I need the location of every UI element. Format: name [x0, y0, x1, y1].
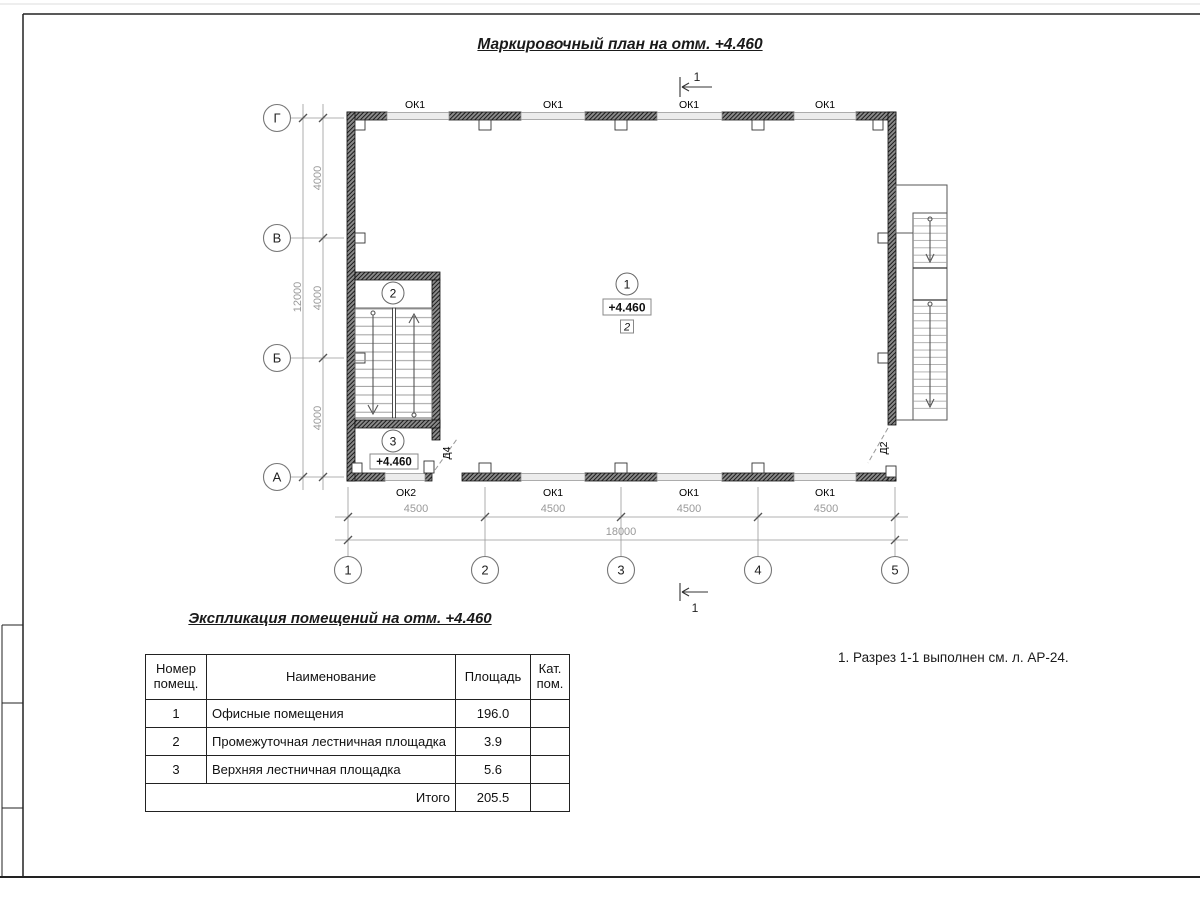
dim-4500-3: 4500 [677, 503, 701, 515]
room-3-elevation: +4.460 [376, 457, 412, 469]
dim-4000-3: 4000 [312, 406, 324, 430]
room-3-number: 3 [390, 435, 397, 449]
header-category: Кат. пом. [531, 655, 570, 700]
room-name-cell: Офисные помещения [207, 700, 456, 728]
room-area-cell: 5.6 [456, 756, 531, 784]
window-label-bottom-3: ОК1 [679, 487, 699, 499]
grid-col-2: 2 [481, 563, 488, 578]
grid-row-a: А [273, 470, 282, 485]
header-name: Наименование [207, 655, 456, 700]
room-category-cell [531, 728, 570, 756]
dim-12000: 12000 [292, 282, 304, 313]
grid-row-v: В [273, 231, 282, 246]
door-label-d2: Д2 [878, 441, 890, 454]
window-label-top-4: ОК1 [815, 99, 835, 111]
room-number-cell: 3 [146, 756, 207, 784]
total-area: 205.5 [456, 784, 531, 812]
window-label-top-2: ОК1 [543, 99, 563, 111]
total-category [531, 784, 570, 812]
dim-4000-2: 4000 [312, 286, 324, 310]
table-row: 2 Промежуточная лестничная площадка 3.9 [146, 728, 570, 756]
walls [347, 112, 896, 481]
total-label: Итого [146, 784, 456, 812]
header-room-number: Номер помещ. [146, 655, 207, 700]
table-total-row: Итого 205.5 [146, 784, 570, 812]
section-marks [680, 77, 712, 601]
table-row: 1 Офисные помещения 196.0 [146, 700, 570, 728]
room-2-number: 2 [390, 287, 397, 301]
grid-col-4: 4 [754, 563, 761, 578]
door-leaves [435, 428, 888, 470]
drawing-title: Маркировочный план на отм. +4.460 [450, 36, 790, 54]
grid-col-1: 1 [344, 563, 351, 578]
door-label-d4: Д4 [441, 446, 453, 459]
room-category-cell [531, 700, 570, 728]
dim-18000: 18000 [606, 526, 637, 538]
drawing-sheet: 4500 4500 4500 4500 18000 4000 4000 4000… [0, 0, 1200, 900]
grid-col-5: 5 [891, 563, 898, 578]
section-label-bottom: 1 [692, 601, 699, 615]
window-openings [385, 113, 856, 481]
table-header-row: Номер помещ. Наименование Площадь Кат. п… [146, 655, 570, 700]
explication-title: Экспликация помещений на отм. +4.460 [145, 610, 535, 627]
window-label-bottom-4: ОК1 [815, 487, 835, 499]
table-row: 3 Верхняя лестничная площадка 5.6 [146, 756, 570, 784]
room-1-elevation: +4.460 [608, 301, 645, 315]
window-label-top-1: ОК1 [405, 99, 425, 111]
window-label-bottom-2: ОК1 [543, 487, 563, 499]
window-label-bottom-1: ОК2 [396, 487, 416, 499]
header-area: Площадь [456, 655, 531, 700]
section-label-top: 1 [694, 70, 701, 84]
room-1-number: 1 [624, 278, 631, 292]
dim-4000-1: 4000 [312, 166, 324, 190]
room-number-cell: 2 [146, 728, 207, 756]
room-area-cell: 3.9 [456, 728, 531, 756]
room-number-cell: 1 [146, 700, 207, 728]
dim-4500-2: 4500 [541, 503, 565, 515]
external-stair [896, 185, 947, 420]
explication-table: Номер помещ. Наименование Площадь Кат. п… [145, 654, 570, 812]
section-note: 1. Разрез 1-1 выполнен см. л. АР-24. [838, 650, 1138, 665]
dim-4500-1: 4500 [404, 503, 428, 515]
room-name-cell: Верхняя лестничная площадка [207, 756, 456, 784]
grid-col-3: 3 [617, 563, 624, 578]
window-label-top-3: ОК1 [679, 99, 699, 111]
grid-row-b: Б [273, 351, 282, 366]
door-labels: Д4 Д2 [441, 441, 890, 459]
dim-4500-4: 4500 [814, 503, 838, 515]
room-1-category: 2 [623, 322, 630, 334]
section-mark-labels: 1 1 [692, 70, 701, 615]
room-area-cell: 196.0 [456, 700, 531, 728]
grid-row-g: Г [273, 111, 280, 126]
room-category-cell [531, 756, 570, 784]
internal-stair [355, 308, 432, 418]
room-name-cell: Промежуточная лестничная площадка [207, 728, 456, 756]
